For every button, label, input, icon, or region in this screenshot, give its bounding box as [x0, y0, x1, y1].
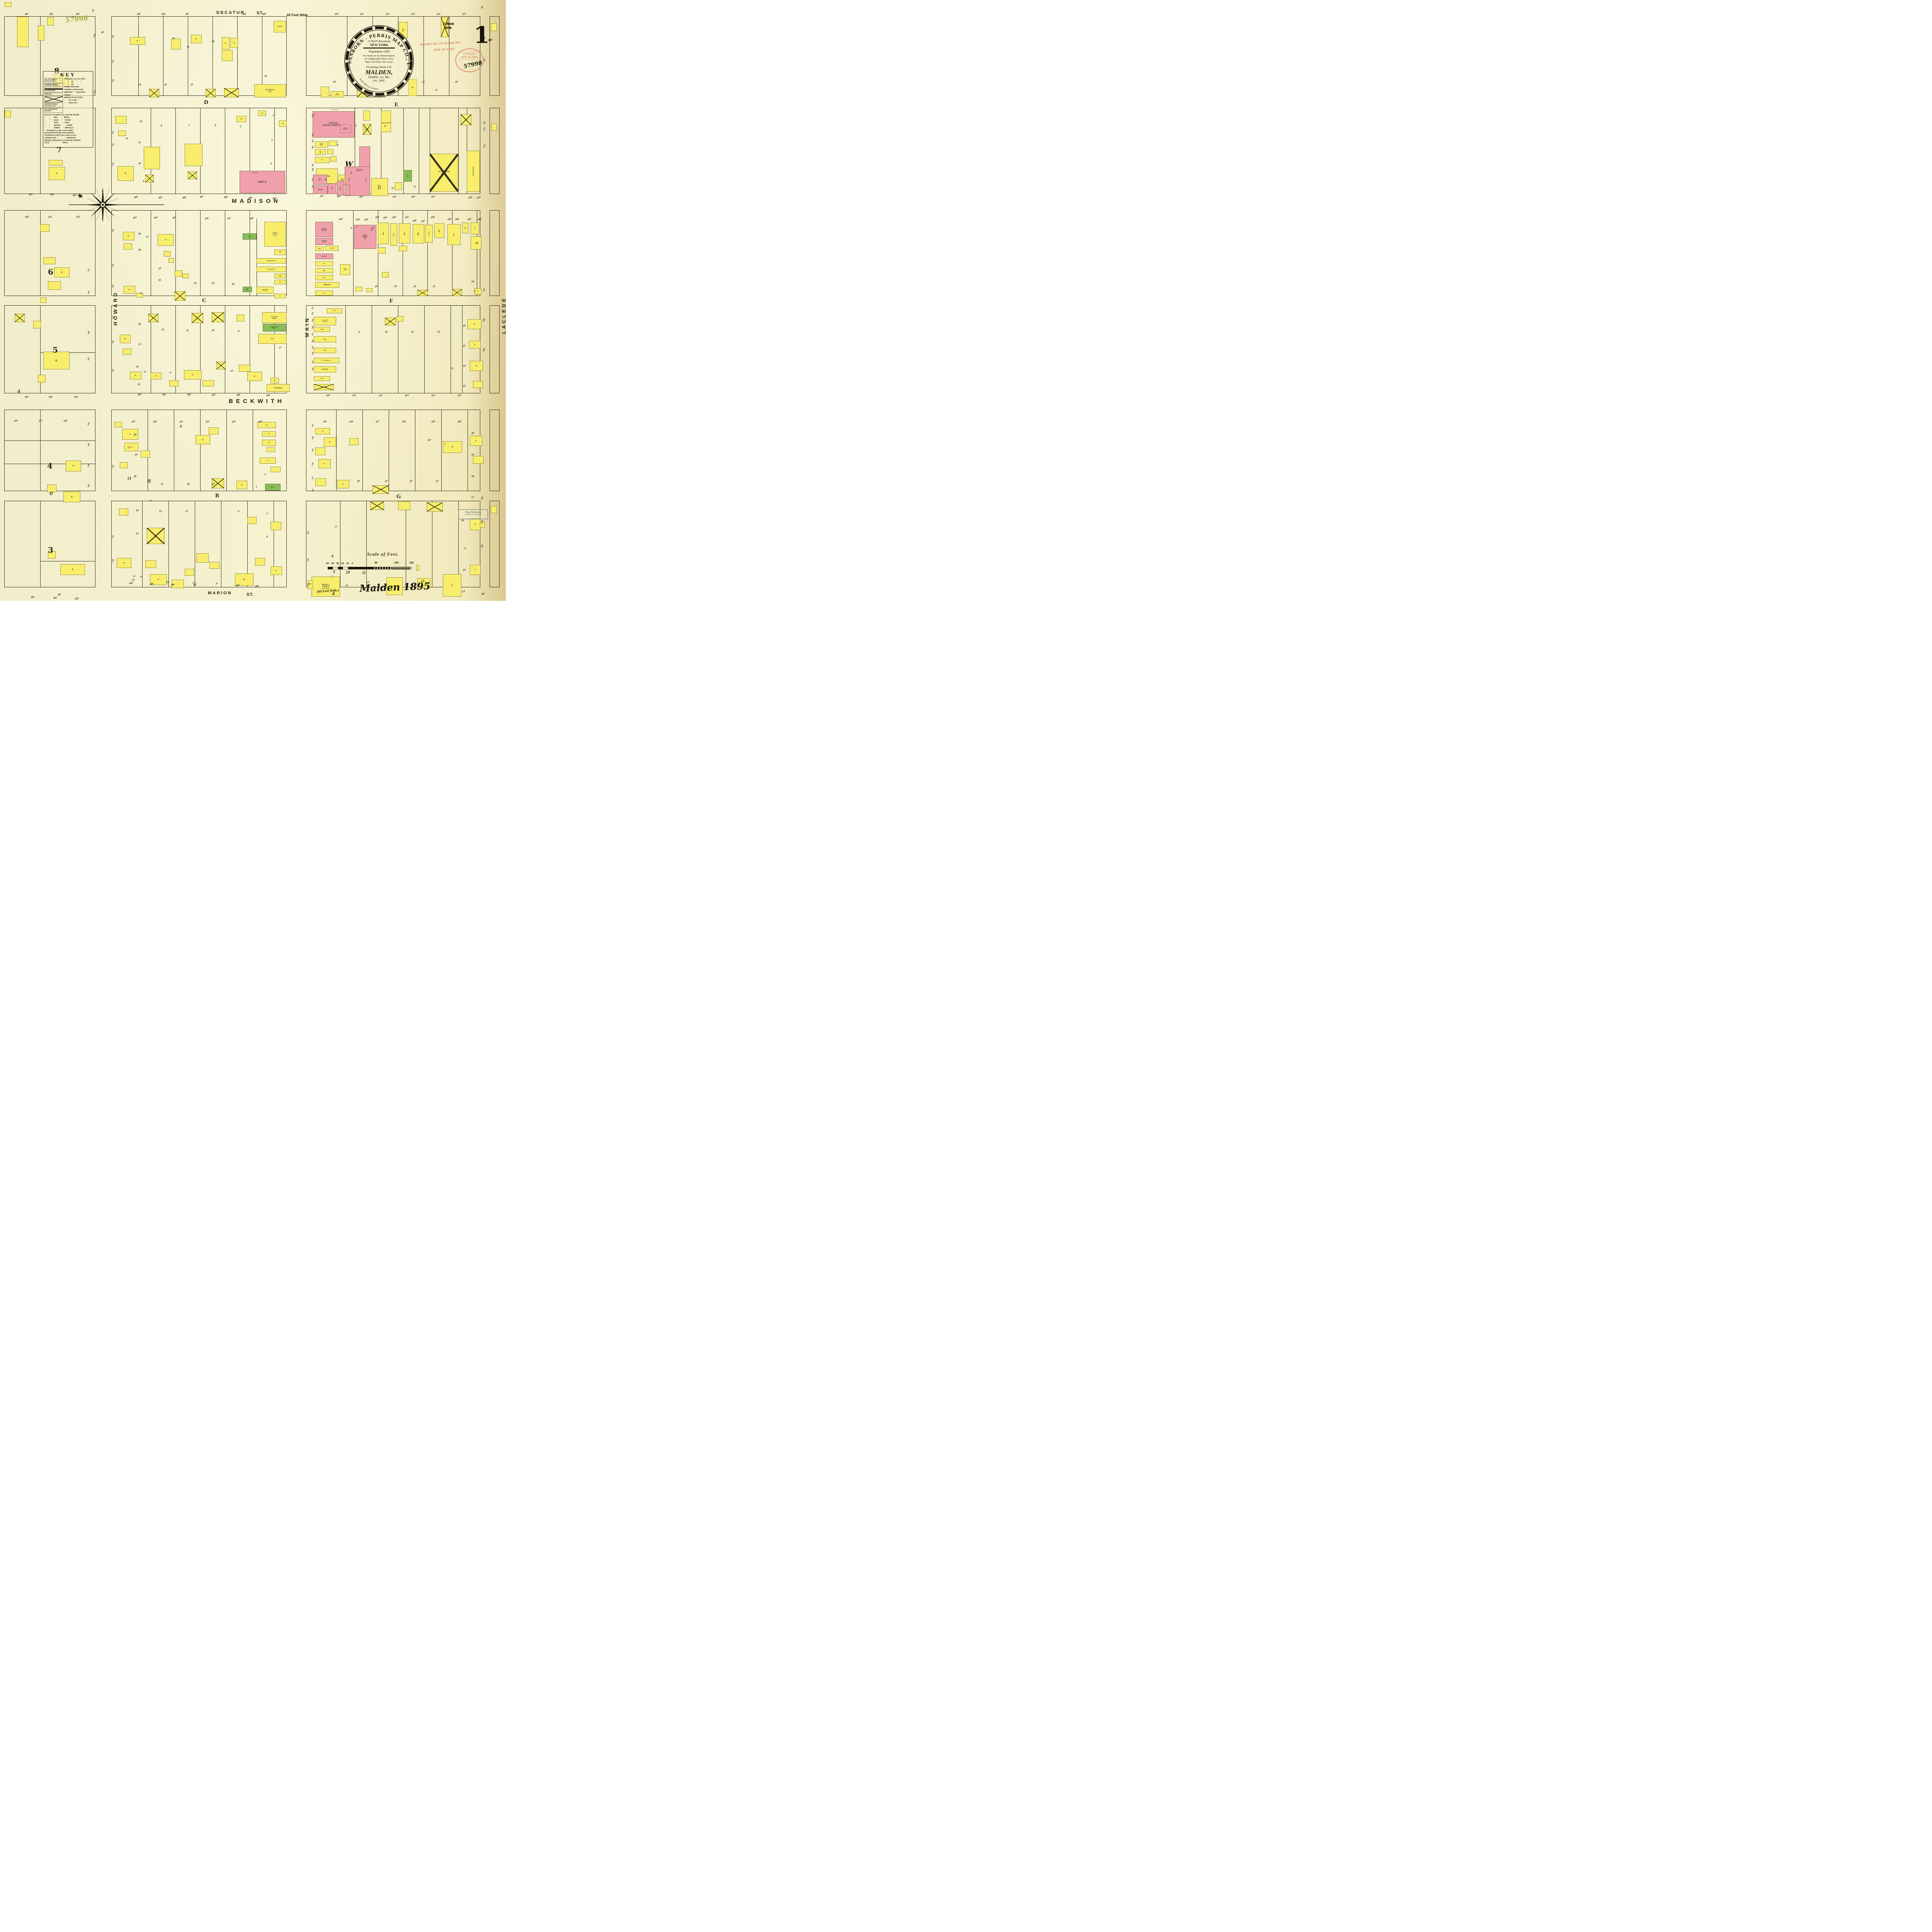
- building: D.: [222, 37, 230, 49]
- building: 2.: [267, 447, 275, 452]
- address-number: 13: [333, 80, 336, 84]
- key-symbol-item: STABLE: [44, 96, 63, 102]
- building: [33, 321, 41, 328]
- stamp-line1: No Steam & No Hand Engines: [363, 54, 395, 57]
- building: [270, 522, 281, 530]
- key-color-line: " " BLUE " STONE: [44, 119, 92, 121]
- address-number: 14: [463, 364, 466, 368]
- address-number: 317: [38, 419, 43, 423]
- street-name: ST.: [247, 592, 254, 597]
- building: Vac.: [258, 334, 287, 344]
- city-block-outline: [111, 210, 287, 296]
- building: [382, 272, 389, 277]
- building-label: Vac.: [262, 432, 276, 437]
- building: D.: [470, 519, 481, 530]
- address-number: 306: [161, 12, 165, 16]
- building: Bl. Sm.: [403, 170, 412, 182]
- scale-bar-segment: [392, 567, 411, 570]
- building: [236, 315, 244, 321]
- address-number: 21: [166, 581, 169, 584]
- building: [224, 88, 239, 97]
- lot-divider-line: [225, 108, 225, 194]
- loc-line: CITY OF WASHINGTON: [456, 59, 483, 61]
- address-number: 12: [161, 328, 164, 332]
- map-annotation: Hand Print'g 2o Off. 2o: [356, 169, 364, 172]
- building: [40, 298, 46, 303]
- building-label: D.: [324, 438, 336, 447]
- key-title: KEY: [43, 72, 93, 78]
- building: D.G.B.&S.S. Gro.: [254, 84, 286, 97]
- address-number: 329: [431, 420, 435, 423]
- building: [149, 89, 159, 97]
- address-number: 24: [374, 285, 378, 288]
- address-number: 10: [138, 162, 141, 165]
- lot-divider-line: [225, 305, 225, 393]
- address-number: 21: [435, 480, 439, 483]
- lot-divider-line: [345, 305, 346, 393]
- building-label: Oven: [259, 111, 266, 116]
- address-number: 429: [338, 217, 343, 221]
- lot-divider-line: [389, 410, 389, 491]
- building: [114, 422, 122, 427]
- building: [473, 381, 483, 388]
- scale-tick-label: 30: [336, 562, 339, 565]
- address-number: 302: [49, 12, 53, 16]
- building: Tin Shop.: [243, 287, 252, 292]
- building: Milly.: [314, 376, 330, 381]
- building-label: D.: [470, 565, 481, 575]
- building-label: Tin Shop.: [243, 234, 257, 240]
- address-number: 60': [58, 593, 61, 597]
- building-label: D.: [470, 436, 482, 446]
- street-letter: D: [204, 99, 208, 105]
- address-number: 409: [255, 584, 259, 588]
- key-text-line: FIRE WALL 6 IN. AB. ROOF: [64, 78, 92, 80]
- building-label: D.: [117, 558, 131, 568]
- key-symbol-item: COUNTING FROM LEFT TO RIGHT WHILE LOOKIN…: [44, 102, 63, 107]
- address-number: 14: [164, 83, 167, 87]
- address-number: 432: [375, 215, 379, 219]
- building: [247, 517, 257, 524]
- building-label: D.: [262, 440, 276, 446]
- building: [141, 451, 150, 457]
- address-number: 26: [211, 40, 214, 43]
- building: Storage.: [363, 124, 371, 135]
- building-label: Flour & Feed: [453, 165, 494, 178]
- address-number: 17: [471, 496, 474, 499]
- lot-divider-line: [340, 501, 340, 587]
- key-color-line: " " BROWN " ADOBE: [44, 124, 92, 127]
- building-label: Comfy.: [314, 327, 330, 332]
- building: Shooting Gallery.: [257, 258, 286, 264]
- building: [315, 478, 326, 486]
- lot-divider-line: [40, 210, 41, 296]
- key-color-line: " " RED " BRICK: [44, 116, 92, 119]
- address-number: 315: [462, 12, 466, 16]
- address-number: 19: [138, 248, 141, 252]
- building: [119, 509, 128, 515]
- building: [239, 365, 250, 372]
- lot-divider-line: [458, 108, 459, 194]
- city-block-outline: [490, 305, 500, 393]
- building: D.G.B.&S. Notions.: [315, 238, 333, 245]
- address-number: 327: [375, 420, 379, 423]
- key-color-codes: B'LD'GS COLORED YELLOW ARE FRAME" " RED …: [43, 113, 93, 129]
- lot-divider-line: [163, 16, 163, 96]
- key-text-line: " 1ST & 3RD ": [64, 99, 92, 102]
- building: [202, 380, 214, 386]
- address-number: 13: [462, 590, 465, 594]
- address-number: 328: [401, 420, 406, 423]
- address-number: 304: [137, 393, 141, 396]
- address-number: 15: [463, 344, 466, 348]
- building: [168, 258, 174, 263]
- address-number: 416: [411, 195, 415, 199]
- building: [175, 270, 182, 277]
- building: D.: [469, 341, 481, 349]
- sanborn-publisher-stamp: SANBORN - PERRIS MAP CO., LIMITED. 117&1…: [342, 24, 416, 98]
- building: [38, 26, 44, 41]
- address-number: 405: [150, 582, 154, 586]
- building: Gro.: [471, 223, 479, 234]
- street-letter: C: [202, 297, 206, 304]
- building-label: Bowling Alley.: [257, 267, 286, 272]
- address-number: 325: [323, 420, 327, 423]
- address-number: 316: [14, 419, 18, 423]
- address-number: 404: [129, 581, 133, 585]
- address-number: 403: [72, 193, 77, 197]
- map-division-stamp: Map Division Library of Congress: [458, 509, 488, 519]
- building: [492, 124, 497, 131]
- key-footnote-line: SOLID " " " METAL ": [44, 141, 92, 144]
- building: [461, 114, 471, 125]
- building-label: D.: [49, 167, 65, 180]
- key-footnotes: " MARKED (CL) ARE CLOTH LINED(5) (19) IN…: [43, 129, 93, 144]
- address-number: 22: [194, 282, 197, 285]
- building: [147, 528, 165, 544]
- address-number: 421: [48, 215, 52, 219]
- handwritten-note: 0: [49, 491, 53, 497]
- address-number: 11: [186, 329, 189, 332]
- building: Vac.: [315, 157, 330, 163]
- key-text-line: STABLE: [64, 94, 92, 96]
- address-number: 303: [74, 395, 78, 399]
- address-number: 10: [346, 570, 350, 575]
- building: D.: [470, 565, 481, 575]
- address-number: 86': [126, 137, 129, 140]
- building: Baky & Confy.: [315, 141, 328, 148]
- address-number: 16: [413, 185, 416, 188]
- building: D.: [337, 480, 349, 488]
- block-number: 3: [48, 546, 53, 555]
- building-label: Vac.: [315, 157, 330, 163]
- address-number: 407: [199, 195, 204, 199]
- lot-divider-line: [452, 210, 452, 296]
- map-annotation: Vac.: [325, 179, 327, 180]
- building-label: Storage 2o: [326, 246, 338, 251]
- address-number: 16: [455, 80, 458, 84]
- building: [327, 149, 333, 154]
- address-number: 428: [249, 216, 253, 220]
- address-number: 21: [160, 483, 163, 486]
- address-number: 15: [138, 343, 141, 346]
- lot-divider-line: [257, 219, 257, 296]
- block-number: 6: [48, 267, 53, 277]
- address-number: 23: [211, 483, 214, 486]
- building-label: Storage.: [363, 124, 371, 135]
- street-name: MARION: [208, 590, 232, 595]
- address-number: 301: [24, 395, 29, 399]
- compass-letter-top: E: [101, 190, 103, 192]
- building: [355, 287, 362, 291]
- lot-divider-line: [200, 410, 201, 491]
- building: Oven: [258, 111, 266, 116]
- address-number: 20: [133, 433, 136, 437]
- building: [491, 23, 497, 31]
- building-label: Drugs.: [316, 276, 333, 280]
- address-number: 313: [411, 12, 415, 16]
- building: [185, 569, 194, 576]
- building-label: D.: [130, 37, 145, 45]
- building: Gro. & Harness.: [314, 358, 339, 363]
- address-number: 36': [215, 582, 218, 585]
- lot-divider-line: [415, 410, 415, 491]
- building-label: Farm Impls.: [314, 384, 334, 390]
- building: [427, 502, 443, 512]
- address-number: 326: [349, 420, 353, 423]
- building: [359, 146, 370, 168]
- stamp-town: MALDEN,: [365, 69, 393, 76]
- lot-divider-line: [213, 16, 213, 96]
- lot-divider-line: [366, 501, 367, 587]
- lot-divider-line: [151, 210, 151, 296]
- handwritten-note: 4: [17, 389, 20, 395]
- compass-needle-icon: ⚜: [77, 194, 84, 199]
- building: Gun Sm: [274, 21, 286, 32]
- city-block-outline: [490, 108, 500, 194]
- building-label: PRESBY'N. CHURCH. 14' to Eaves.: [312, 577, 340, 597]
- address-number: 401: [29, 192, 33, 196]
- street-letter: E: [395, 101, 398, 108]
- street-name: HOWARD: [112, 291, 119, 325]
- scale-tick-label: 20: [341, 562, 344, 565]
- handwritten-note: W: [345, 160, 353, 168]
- address-number: 401: [31, 595, 35, 599]
- scale-bar-segment: [353, 567, 372, 570]
- address-number: 310: [326, 393, 330, 397]
- address-number: 34': [143, 371, 146, 373]
- building: D.: [158, 234, 174, 246]
- building: [398, 502, 410, 510]
- building: [196, 553, 209, 563]
- building-label: D.: [443, 442, 462, 453]
- building: [15, 314, 25, 322]
- building: [48, 281, 61, 290]
- street-name: BECKWITH: [229, 398, 285, 405]
- address-number: 324: [258, 420, 262, 423]
- address-number: 16: [463, 324, 466, 328]
- building-label: D.: [231, 38, 238, 48]
- address-number: 21: [451, 367, 454, 370]
- address-number: 23: [384, 480, 388, 483]
- address-number: 318: [63, 419, 67, 423]
- address-number: 75': [334, 525, 338, 529]
- address-number: 411: [320, 194, 324, 198]
- building: Gro.: [274, 294, 286, 298]
- building-label: Genl. S.: [316, 254, 333, 259]
- key-color-line: B'LD'GS COLORED YELLOW ARE FRAME: [44, 114, 92, 116]
- address-number: 21': [279, 346, 282, 349]
- building: [182, 274, 189, 278]
- building: [145, 560, 156, 568]
- address-number: 13: [158, 267, 161, 270]
- building-label: Clo. & Gents Furng.: [314, 317, 336, 325]
- street-letter: F: [389, 298, 393, 304]
- address-number: 419: [476, 196, 481, 199]
- building-label: Baky & Confy.: [315, 142, 328, 148]
- address-number: 11: [411, 330, 414, 334]
- key-color-line: " " GREEN " SPECIALS: [44, 127, 92, 129]
- building: Bl. Sm.: [265, 484, 281, 491]
- building: Vac.: [274, 280, 286, 284]
- building-label: D.G.B.&S. Notions.: [316, 238, 333, 245]
- building: D.: [124, 286, 135, 294]
- key-color-line: " " GREY " IRON: [44, 121, 92, 124]
- address-number: 12: [159, 510, 162, 513]
- building: Vac.: [315, 428, 330, 434]
- lot-divider-line: [372, 305, 372, 393]
- key-text-line: " " 12 " " ": [64, 80, 92, 83]
- building: Gro.: [315, 291, 333, 296]
- address-number: 13: [463, 384, 466, 388]
- building: [212, 312, 224, 322]
- building: Farm Impls.: [314, 384, 334, 390]
- building: Drugs.: [314, 348, 336, 353]
- building: [145, 175, 154, 182]
- building-label: D.: [130, 372, 141, 379]
- building-label: D.: [151, 373, 162, 379]
- building-label: Stoves Hard W. & Furne.: [257, 287, 274, 294]
- key-text-line: WINDOW IN 1ST STORY: [64, 96, 92, 99]
- building: W.Ho.: [236, 116, 247, 122]
- city-block-outline: [490, 210, 500, 296]
- building-label: Barber.: [316, 247, 324, 251]
- stamp-line2: No Independent Hose Carts: [364, 58, 394, 60]
- address-number: 14: [136, 365, 139, 369]
- building: [255, 558, 265, 566]
- address-number: 430: [355, 218, 360, 221]
- building-label: D.: [191, 35, 202, 43]
- street-name: 60 Feet Wide: [287, 13, 308, 17]
- building: D.: [66, 461, 81, 471]
- building-label: W.Ho.: [237, 116, 247, 122]
- address-number: 10: [384, 330, 388, 334]
- building-label: D.: [118, 167, 134, 181]
- address-number: 340: [457, 420, 461, 423]
- key-text-line: " 2ND & 4TH ": [64, 102, 92, 104]
- lot-divider-line: [142, 501, 143, 587]
- building: Sal.: [274, 250, 286, 255]
- building-label: Milly.: [314, 377, 330, 381]
- key-text-line: OPENING & IRON DOOR: [64, 88, 92, 91]
- address-number: 22: [187, 483, 190, 486]
- lot-divider-line: [250, 210, 250, 296]
- building: Ice Cream Parlor.: [262, 312, 287, 323]
- scale-bar-title: Scale of Feet.: [367, 552, 399, 557]
- address-number: 10: [211, 329, 214, 332]
- building: [148, 314, 158, 322]
- building: [118, 131, 126, 136]
- building-label: D.: [237, 481, 247, 489]
- sheet-count-note: 2 Sheets: [443, 22, 454, 26]
- building: [38, 375, 46, 383]
- building-label: D.: [337, 480, 349, 488]
- building: D.: [318, 459, 331, 468]
- stamp-address: 117&119 Broadway: [367, 39, 391, 43]
- building: D.: [63, 492, 80, 502]
- street-letter: G: [396, 493, 401, 500]
- building: [370, 502, 384, 510]
- building-label: D.: [123, 232, 134, 240]
- address-number: 320: [153, 420, 157, 423]
- lot-divider-line: [221, 501, 221, 587]
- building: [396, 316, 403, 321]
- address-number: 413: [359, 195, 363, 199]
- lot-divider-line: [419, 108, 419, 194]
- address-number: 321: [179, 420, 183, 423]
- building: D.: [60, 564, 85, 575]
- building-label: Vac.: [275, 280, 286, 284]
- address-number: 314: [431, 393, 435, 397]
- address-number: 412: [337, 194, 341, 198]
- building-label: Vac.: [316, 429, 330, 434]
- address-number: 305: [136, 12, 141, 16]
- lot-divider-line: [174, 410, 174, 491]
- building-label: Gro.: [316, 291, 333, 296]
- lot-divider-line: [353, 210, 354, 296]
- scale-tick-label: 10: [346, 562, 349, 565]
- key-text-column: FIRE WALL 6 IN. AB. ROOF" " 12 " " "" " …: [63, 78, 92, 113]
- address-number: 15: [190, 83, 193, 87]
- building-label: Board & Lodg's.: [371, 179, 388, 195]
- building-label: Vac.: [260, 458, 276, 464]
- building-label: Tin W.: [327, 309, 342, 313]
- lot-divider-line: [4, 440, 95, 441]
- address-number: 22': [391, 187, 395, 190]
- stamp-population: Population 1500: [368, 50, 389, 53]
- map-sheet: D.D.D.D.D.D.D.D.D.D.D.D.G.B.&S.S. Gro.Gu…: [0, 0, 506, 601]
- address-number: 301: [24, 12, 29, 16]
- address-number: 314: [436, 12, 440, 16]
- address-number: 13: [137, 383, 140, 386]
- address-number: 6: [332, 554, 333, 559]
- building: Rest.: [434, 223, 444, 238]
- key-symbol-item: STEAM BOILER: [44, 88, 63, 92]
- library-of-congress-stamp: LIBRARY OF CONGRESS COPYRIGHT NOV 16 189…: [455, 48, 484, 72]
- building-label: Gro.: [275, 294, 286, 298]
- building-label: D.: [64, 492, 80, 502]
- address-number: 315: [457, 393, 461, 397]
- building: JAIL IR.LINED.: [340, 124, 351, 133]
- address-number: 21: [432, 285, 435, 288]
- building-label: D.: [66, 461, 81, 471]
- building-label: Shooting Gallery.: [257, 259, 286, 264]
- address-number: 307: [211, 393, 216, 397]
- address-number: 441: [467, 217, 471, 221]
- building: [175, 291, 185, 301]
- lot-divider-line: [175, 108, 176, 194]
- address-number: 302: [48, 395, 53, 399]
